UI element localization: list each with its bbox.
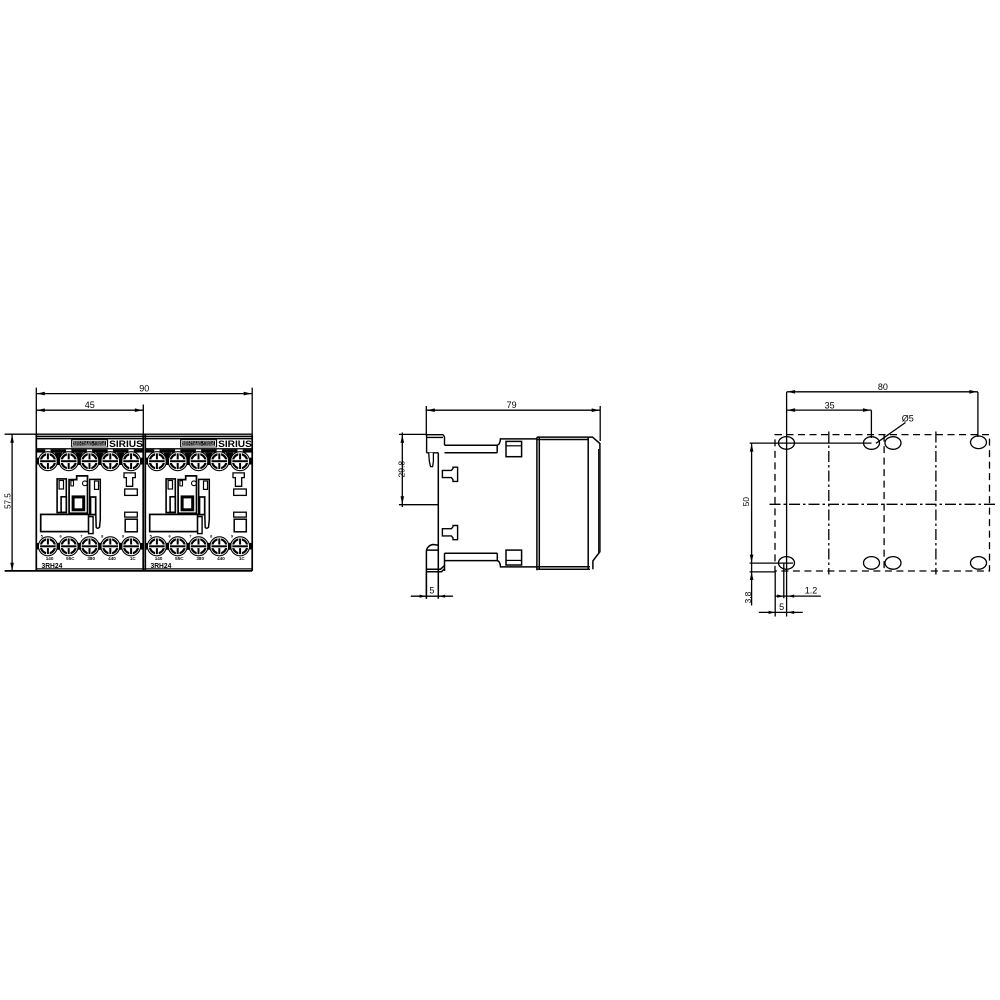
svg-text:29.8: 29.8 bbox=[397, 461, 407, 478]
svg-text:1.2: 1.2 bbox=[805, 585, 818, 595]
svg-text:35: 35 bbox=[825, 400, 835, 410]
svg-text:57.5: 57.5 bbox=[4, 493, 13, 509]
svg-text:5: 5 bbox=[429, 585, 434, 595]
svg-text:Ø5: Ø5 bbox=[902, 413, 914, 423]
svg-text:5: 5 bbox=[779, 602, 784, 612]
svg-text:79: 79 bbox=[507, 400, 517, 410]
svg-text:50: 50 bbox=[741, 497, 751, 507]
svg-text:3.8: 3.8 bbox=[743, 591, 753, 603]
svg-text:80: 80 bbox=[878, 382, 888, 392]
svg-text:45: 45 bbox=[85, 400, 95, 410]
svg-text:90: 90 bbox=[139, 384, 149, 394]
